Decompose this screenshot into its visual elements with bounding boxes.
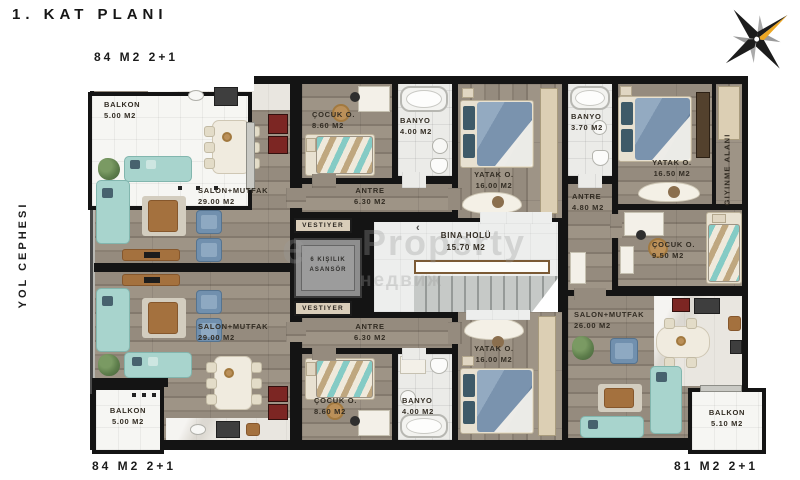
kid-bed <box>316 360 373 398</box>
stool <box>668 186 680 198</box>
hall-cabinet <box>570 252 586 284</box>
room-label-antre-bl: ANTRE 6.30 M2 <box>340 322 400 344</box>
door-opening <box>402 172 426 188</box>
door-opening <box>610 214 622 238</box>
room-label-yatak-81: YATAK O. 16.50 M2 <box>640 158 704 180</box>
door-opening <box>286 322 306 342</box>
room-label-antre-tl: ANTRE 6.30 M2 <box>340 186 400 208</box>
door-opening <box>312 174 336 188</box>
room-label-salon-81: SALON+MUTFAK 26.00 M2 <box>574 310 644 332</box>
apartment-label-bottom-left: 84 M2 2+1 <box>92 459 176 473</box>
room-label-hall: BINA HOLÜ 15.70 M2 <box>396 230 536 253</box>
plant <box>98 158 120 180</box>
vestiyer-bottom: VESTIYER <box>294 301 352 316</box>
kitchen-cabinet <box>268 404 288 420</box>
chair <box>686 318 697 329</box>
door-opening <box>448 188 462 210</box>
stove <box>694 298 720 314</box>
table-decor <box>676 336 686 346</box>
chair <box>251 378 262 389</box>
nightstand <box>620 86 632 96</box>
railing-dot <box>142 393 146 397</box>
table-decor <box>224 368 234 378</box>
page-title: 1. KAT PLANI <box>12 6 168 23</box>
room-label-banyo-bl: BANYO 4.00 M2 <box>402 396 434 418</box>
room-label-cocuk-bl: ÇOCUK O. 8.60 M2 <box>314 396 357 418</box>
desk <box>358 86 390 112</box>
kid-bed <box>316 136 373 174</box>
hall-door-opening <box>466 310 530 320</box>
railing-dot <box>152 393 156 397</box>
floor-plan: 1. KAT PLANI 84 M2 2+1 84 M2 2+1 81 M2 2… <box>0 0 800 480</box>
sofa-pillow <box>146 160 156 169</box>
sofa-pillow <box>102 188 113 198</box>
chair <box>686 357 697 368</box>
room-label-giyinme-81: GIYINME ALANI <box>723 121 734 217</box>
door-opening <box>312 348 336 360</box>
room-label-balkon-bl: BALKON 5.00 M2 <box>96 406 160 428</box>
sofa-pillow <box>148 357 158 366</box>
chair <box>206 394 217 405</box>
sofa-pillow <box>132 357 142 366</box>
room-label-yatak-tl: YATAK O. 16.00 M2 <box>462 170 526 192</box>
coffee-table <box>604 388 634 408</box>
plant <box>572 336 594 360</box>
cutting-board <box>246 423 260 436</box>
pillow <box>463 401 475 424</box>
tv-icon <box>144 252 160 258</box>
room-label-salon-tl: SALON+MUTFAK 29.00 M2 <box>198 186 268 208</box>
sofa-pillow <box>656 372 667 382</box>
door-opening <box>448 322 462 344</box>
bathtub-basin <box>575 90 605 106</box>
apartment-label-bottom-right: 81 M2 2+1 <box>674 459 758 473</box>
pillow <box>463 374 475 397</box>
window-wall-left <box>90 210 93 394</box>
salon-divider-wall <box>94 263 290 272</box>
plant <box>98 354 120 376</box>
pillow <box>463 134 475 158</box>
kitchen-sink <box>188 90 204 101</box>
cooktop <box>672 298 690 312</box>
armchair <box>196 210 222 234</box>
desk-chair <box>350 92 360 102</box>
exterior-left <box>50 68 90 460</box>
apartment-label-top-left: 84 M2 2+1 <box>94 50 178 64</box>
sliding-door-icon <box>246 122 255 190</box>
chair <box>206 362 217 373</box>
pillow <box>621 102 633 125</box>
tv-icon <box>144 277 160 283</box>
chair <box>204 142 215 153</box>
sofa-pillow <box>102 296 113 306</box>
room-label-banyo-tl: BANYO 4.00 M2 <box>400 116 432 138</box>
road-facade-label: YOL CEPHESI <box>17 175 31 335</box>
wardrobe <box>538 316 556 436</box>
refrigerator <box>268 386 288 402</box>
desk <box>358 410 390 436</box>
door-opening <box>578 174 602 188</box>
room-label-antre-81: ANTRE 4.80 M2 <box>572 192 604 214</box>
chair <box>206 378 217 389</box>
door-opening <box>286 188 306 208</box>
room-label-balkon-81: BALKON 5.10 M2 <box>694 408 760 430</box>
room-label-balkon-tl: BALKON 5.00 M2 <box>104 100 140 122</box>
chair <box>251 394 262 405</box>
chair <box>204 158 215 169</box>
armchair <box>610 338 638 364</box>
sliding-door-icon <box>700 385 742 392</box>
nightstand <box>462 88 474 98</box>
pillow <box>306 362 316 376</box>
kitchen-cabinet <box>268 136 288 154</box>
pillow <box>306 138 316 152</box>
pillow <box>621 129 633 152</box>
door-opening <box>402 348 426 360</box>
room-label-banyo-81: BANYO 3.70 M2 <box>571 112 603 134</box>
kitchen-sink <box>730 340 742 354</box>
room-label-salon-bl: SALON+MUTFAK 29.00 M2 <box>198 322 268 344</box>
stool <box>492 196 504 208</box>
desk-chair <box>636 230 646 240</box>
railing-dot <box>132 393 136 397</box>
stove <box>214 87 238 106</box>
sofa-pillow <box>588 420 598 429</box>
railing-dot <box>178 186 182 190</box>
bathroom-sink <box>432 138 448 154</box>
armchair <box>196 238 222 262</box>
kid-bed <box>708 224 740 282</box>
coffee-table <box>148 200 178 232</box>
watermark-glyph: e <box>282 224 308 274</box>
refrigerator <box>268 114 288 134</box>
room-label-cocuk-81: ÇOCUK O. 9.50 M2 <box>652 240 695 262</box>
chair <box>251 362 262 373</box>
stove <box>216 421 240 438</box>
cutting-board <box>728 316 741 331</box>
armchair <box>196 290 222 314</box>
pillow <box>463 106 475 130</box>
room-label-cocuk-tl: ÇOCUK O. 8.60 M2 <box>312 110 355 132</box>
table-decor <box>222 132 232 142</box>
closet <box>620 246 634 274</box>
vestiyer-bottom-label: VESTIYER <box>302 305 344 312</box>
wardrobe <box>540 88 558 214</box>
watermark-text-2: недвиж <box>360 270 443 292</box>
wardrobe <box>696 92 710 158</box>
chair <box>204 126 215 137</box>
bathtub-basin <box>406 418 442 434</box>
dining-table <box>212 120 250 174</box>
sofa-pillow <box>130 160 140 169</box>
coffee-table <box>148 302 178 334</box>
kitchen-sink <box>190 424 206 435</box>
room-label-yatak-bl: YATAK O. 16.00 M2 <box>462 344 526 366</box>
compass-rose-icon <box>712 0 798 80</box>
chair <box>664 318 675 329</box>
dining-table <box>214 356 252 410</box>
bathtub-basin <box>406 90 442 108</box>
door-opening <box>574 288 606 300</box>
